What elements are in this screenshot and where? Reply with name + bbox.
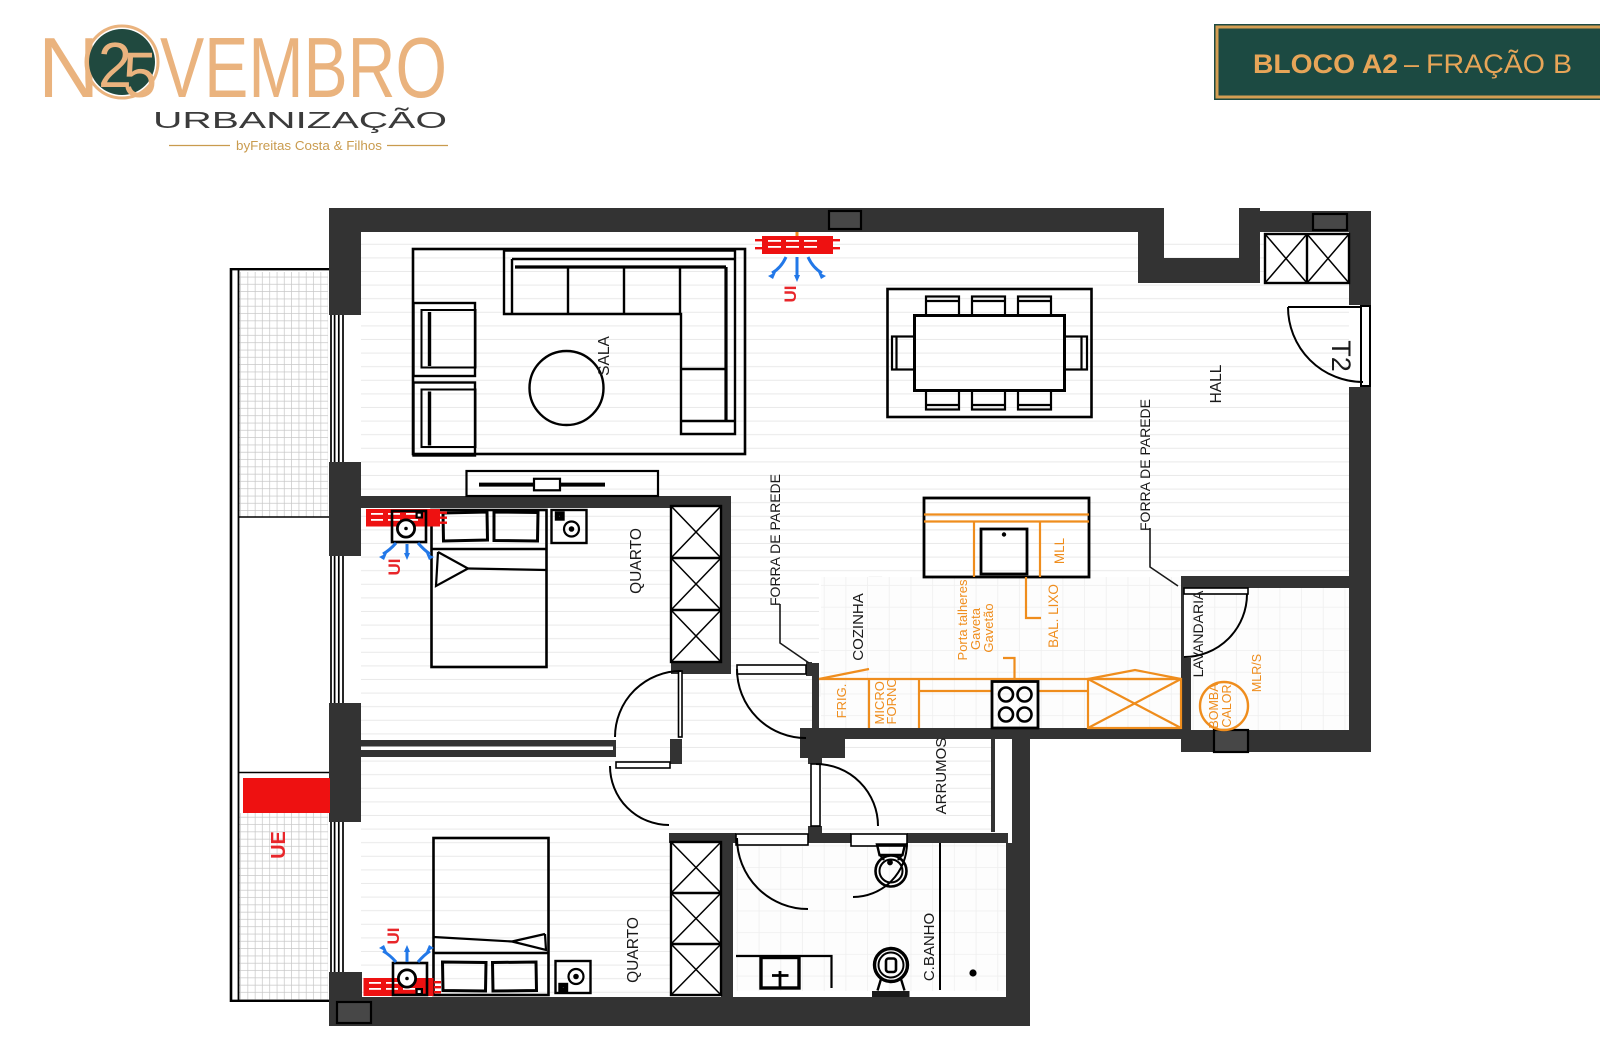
svg-text:MLR/S: MLR/S xyxy=(1250,654,1264,692)
svg-text:COZINHA: COZINHA xyxy=(850,593,867,661)
svg-text:T2: T2 xyxy=(1326,340,1356,372)
svg-text:UI: UI xyxy=(781,286,800,303)
svg-text:FRAÇÃO B: FRAÇÃO B xyxy=(1426,48,1572,79)
svg-text:LAVANDARIA: LAVANDARIA xyxy=(1190,590,1206,677)
svg-text:HALL: HALL xyxy=(1208,364,1225,403)
svg-text:MLL: MLL xyxy=(1052,537,1067,564)
svg-text:C.BANHO: C.BANHO xyxy=(921,913,938,981)
svg-text:UE: UE xyxy=(268,831,290,859)
svg-text:byFreitas Costa & Filhos: byFreitas Costa & Filhos xyxy=(236,138,383,153)
svg-text:UI: UI xyxy=(385,559,404,576)
svg-text:FORNO: FORNO xyxy=(884,678,899,725)
svg-text:Gavetão: Gavetão xyxy=(981,603,996,652)
svg-text:–: – xyxy=(1404,49,1419,79)
svg-text:5: 5 xyxy=(123,39,157,111)
svg-text:URBANIZAÇÃO: URBANIZAÇÃO xyxy=(153,107,447,133)
svg-text:CALOR: CALOR xyxy=(1220,684,1234,727)
svg-text:QUARTO: QUARTO xyxy=(625,917,642,983)
svg-text:UI: UI xyxy=(384,928,403,945)
svg-text:FORRA DE PAREDE: FORRA DE PAREDE xyxy=(767,474,783,606)
svg-text:VEMBRO: VEMBRO xyxy=(160,21,447,116)
svg-text:QUARTO: QUARTO xyxy=(628,528,645,594)
svg-text:SALA: SALA xyxy=(596,336,613,376)
svg-text:ARRUMOS: ARRUMOS xyxy=(933,738,950,815)
svg-text:FRIG.: FRIG. xyxy=(834,684,849,719)
svg-text:BAL. LIXO: BAL. LIXO xyxy=(1046,584,1061,648)
svg-text:FORRA DE PAREDE: FORRA DE PAREDE xyxy=(1137,399,1153,531)
svg-text:BOMBA: BOMBA xyxy=(1207,683,1221,729)
svg-text:BLOCO A2: BLOCO A2 xyxy=(1253,49,1398,79)
